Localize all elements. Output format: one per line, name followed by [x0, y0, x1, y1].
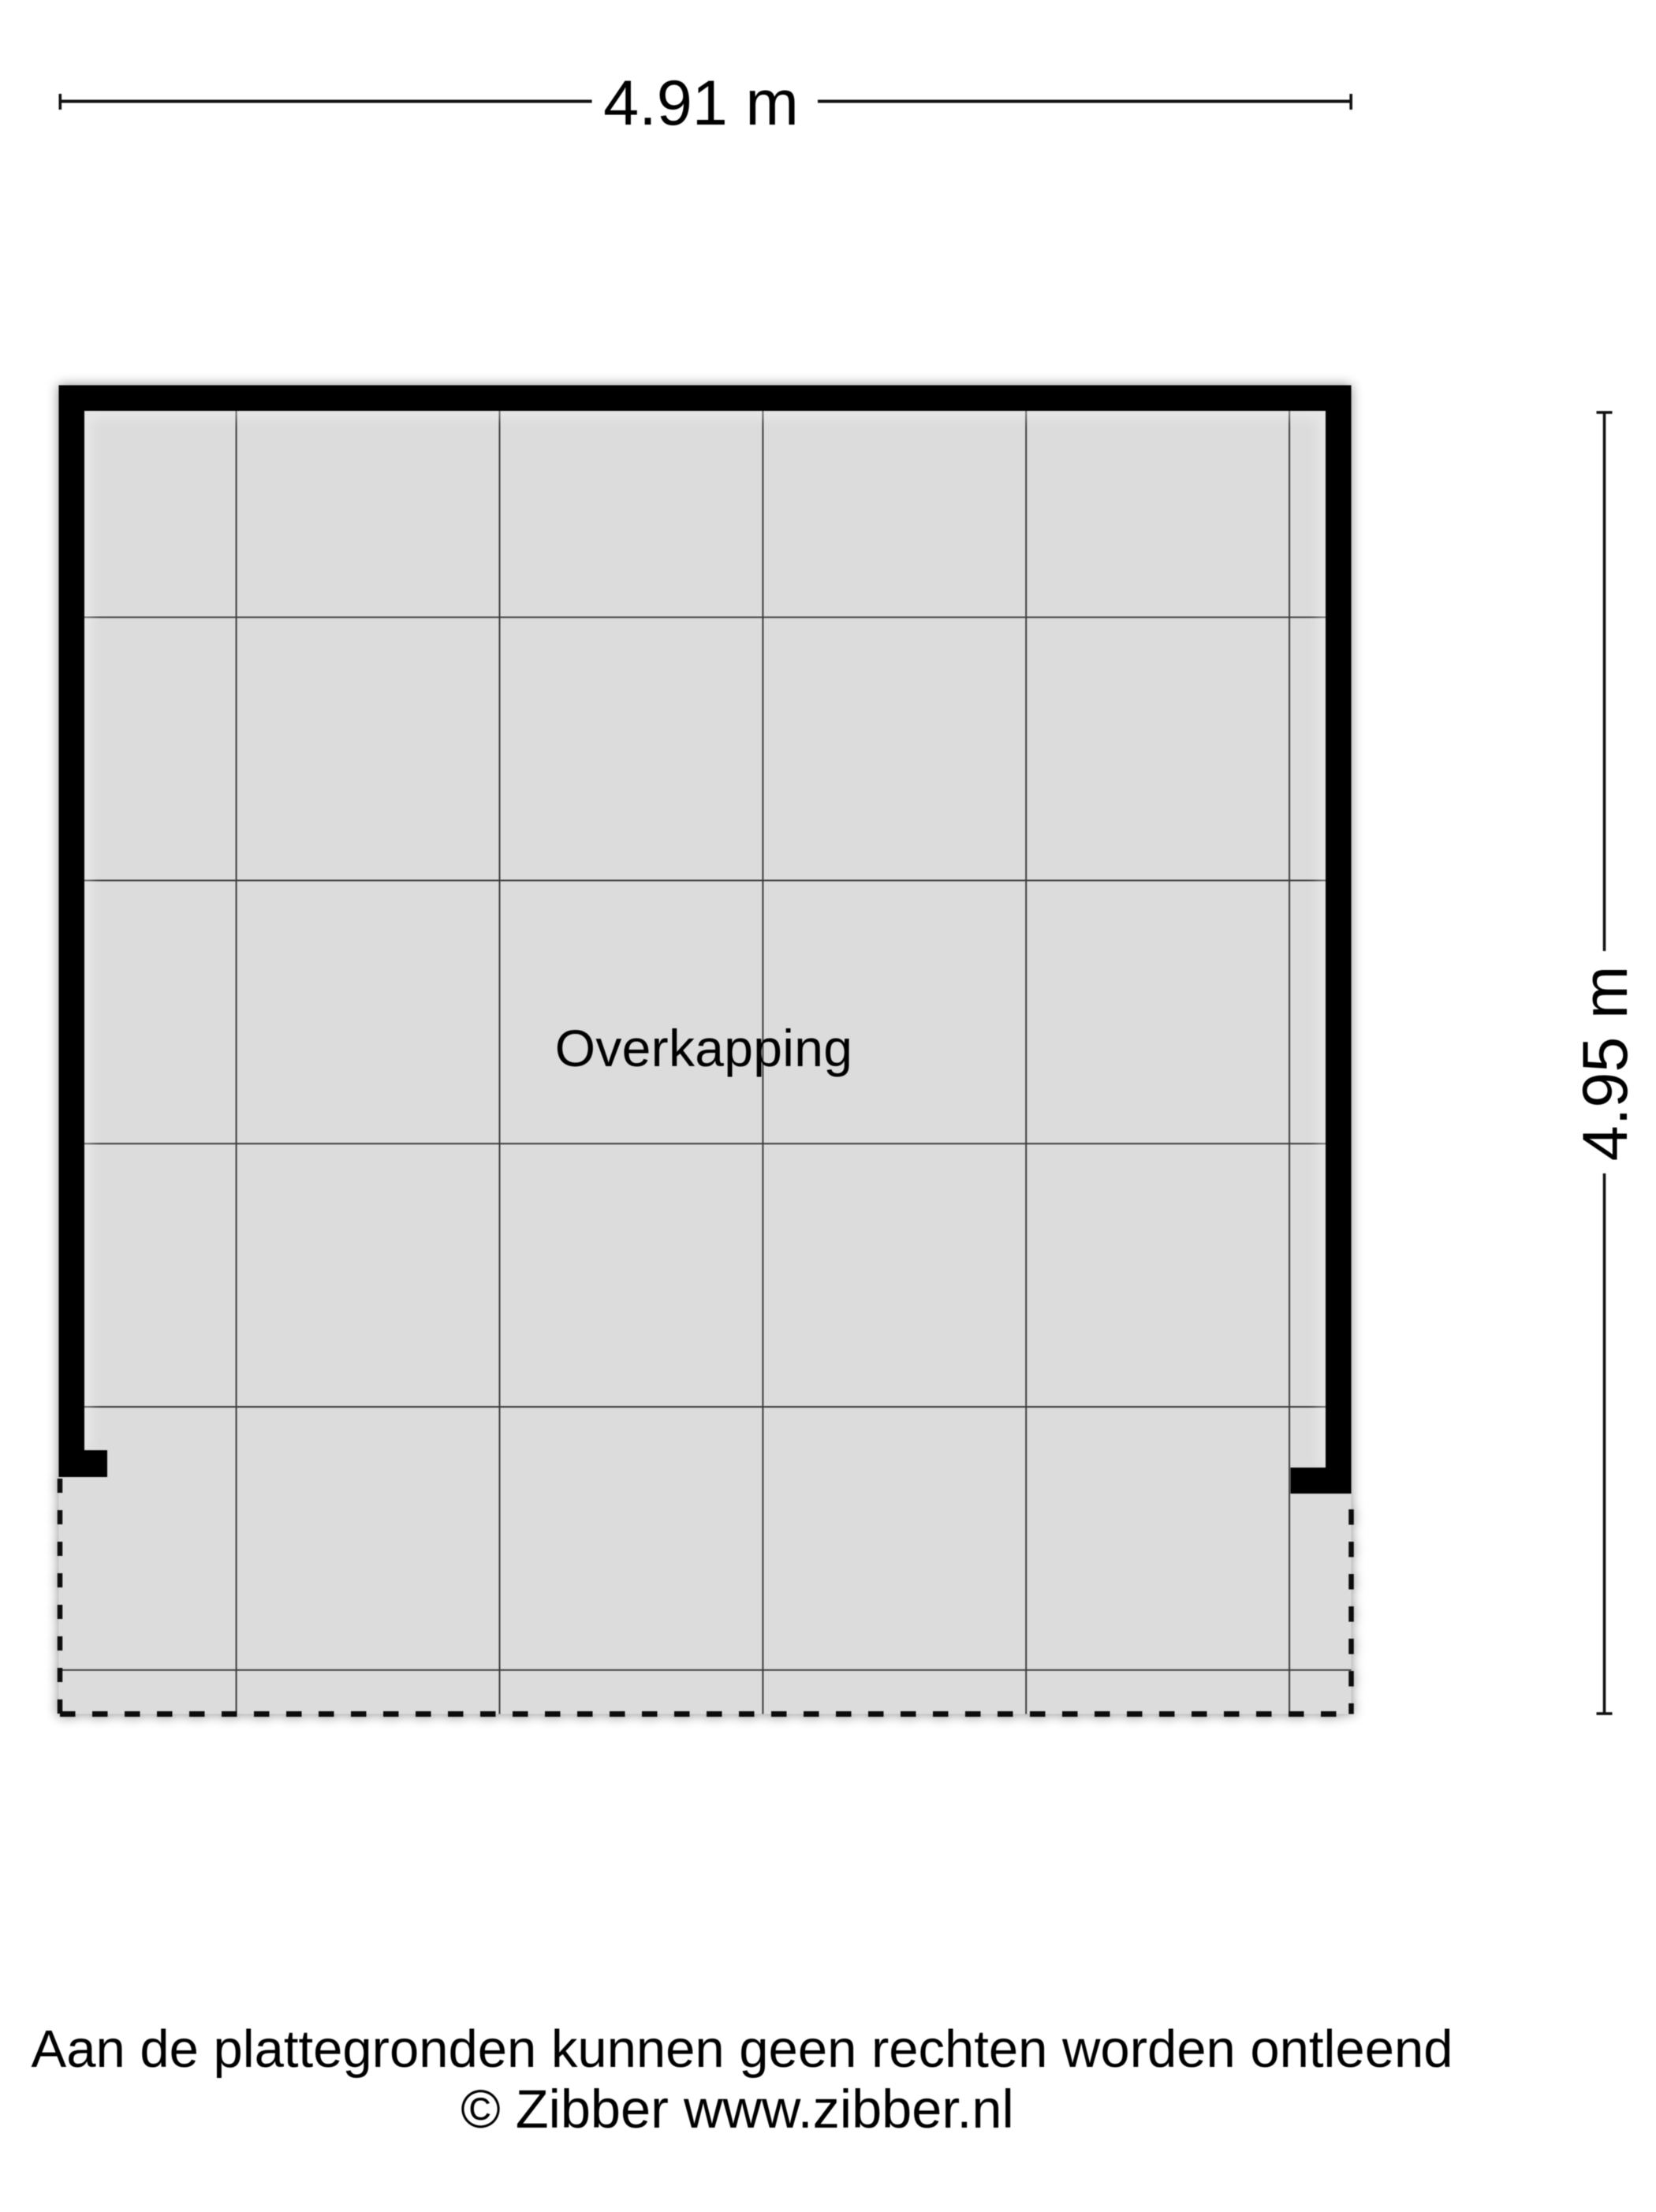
- svg-text:Overkapping: Overkapping: [555, 1019, 853, 1077]
- svg-text:4.95 m: 4.95 m: [1570, 966, 1641, 1162]
- svg-text:4.91 m: 4.91 m: [603, 68, 799, 139]
- svg-text:© Zibber www.zibber.nl: © Zibber www.zibber.nl: [461, 2079, 1014, 2139]
- svg-text:Aan de plattegronden kunnen ge: Aan de plattegronden kunnen geen rechten…: [32, 2020, 1453, 2079]
